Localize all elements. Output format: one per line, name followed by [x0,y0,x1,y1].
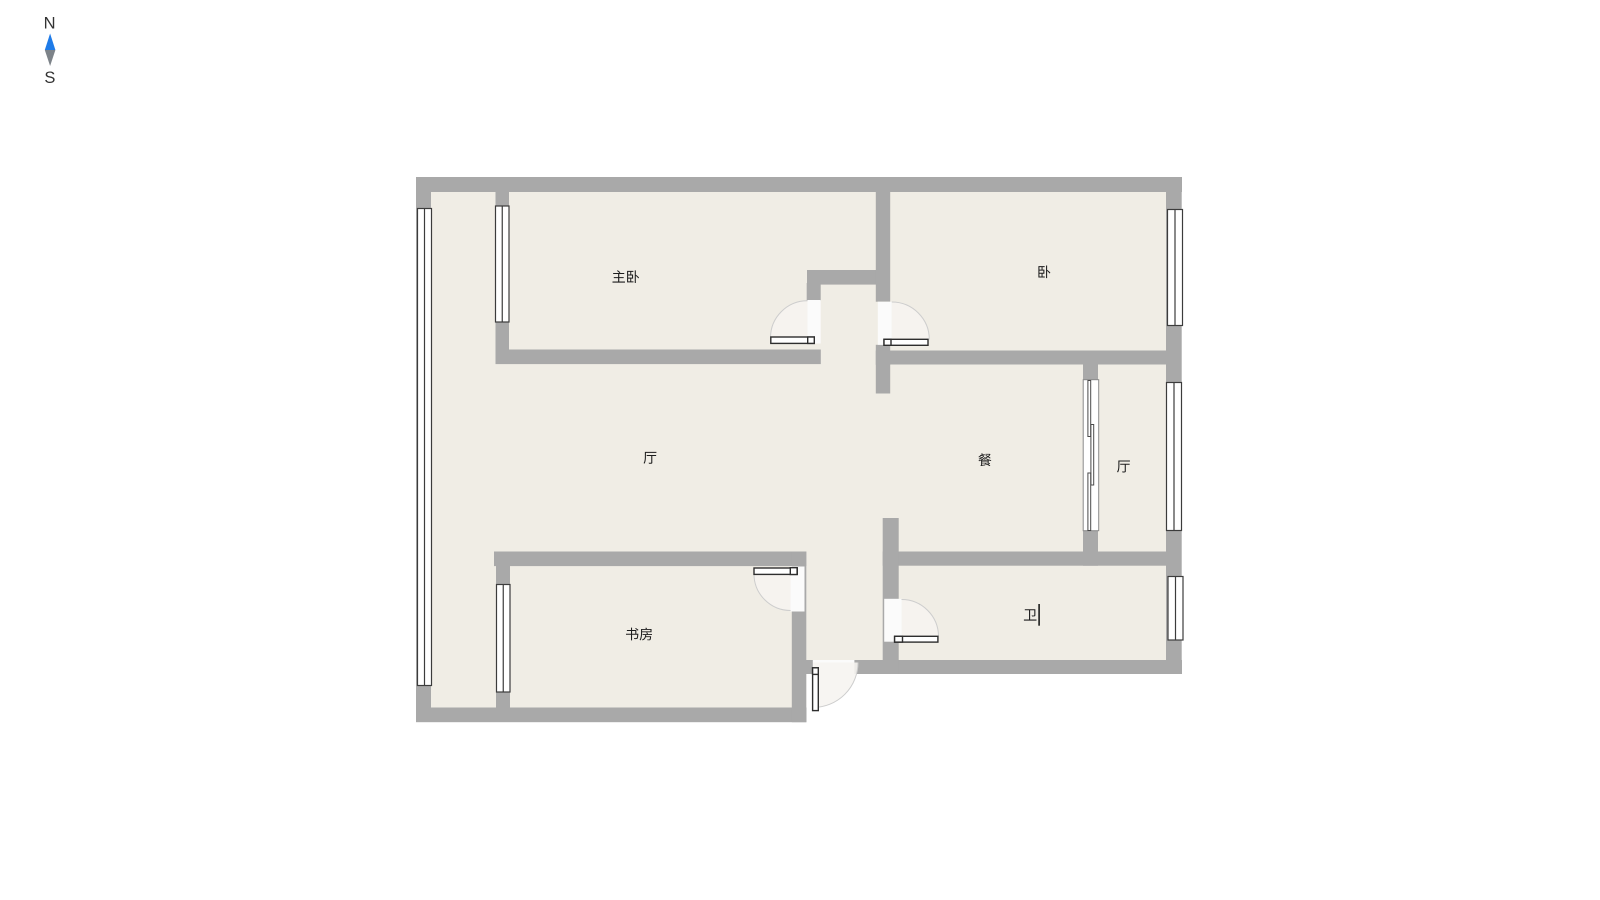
svg-text:S: S [44,69,55,87]
svg-text:N: N [44,15,56,33]
